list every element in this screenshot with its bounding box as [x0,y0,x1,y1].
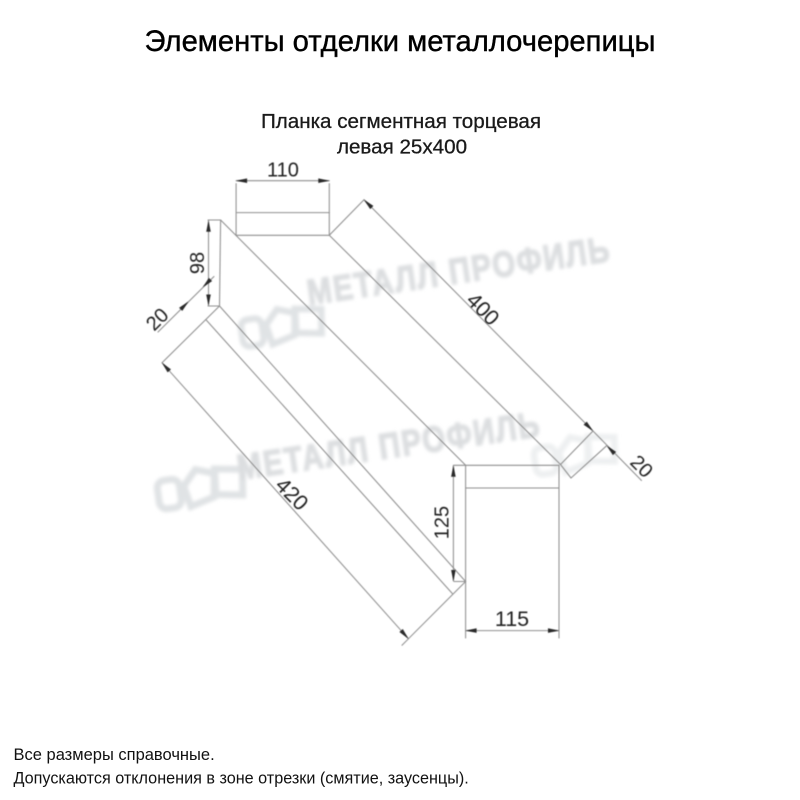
svg-text:20: 20 [142,304,173,335]
svg-text:Элементы отделки металлочерепи: Элементы отделки металлочерепицы [145,26,656,58]
svg-text:левая 25х400: левая 25х400 [337,136,467,159]
svg-text:125: 125 [431,506,453,539]
svg-text:110: 110 [267,159,299,181]
svg-text:МЕТАЛЛ ПРОФИЛЬ: МЕТАЛЛ ПРОФИЛЬ [304,228,613,312]
svg-text:400: 400 [462,288,504,330]
svg-text:Планка сегментная торцевая: Планка сегментная торцевая [261,110,541,133]
svg-text:Все размеры справочные.: Все размеры справочные. [14,746,215,764]
svg-text:98: 98 [187,252,209,274]
svg-text:115: 115 [495,607,529,631]
svg-text:20: 20 [625,451,656,482]
svg-text:МЕТАЛЛ ПРОФИЛЬ: МЕТАЛЛ ПРОФИЛЬ [234,403,543,487]
svg-text:Допускаются отклонения в зоне: Допускаются отклонения в зоне отрезки (с… [14,770,469,788]
